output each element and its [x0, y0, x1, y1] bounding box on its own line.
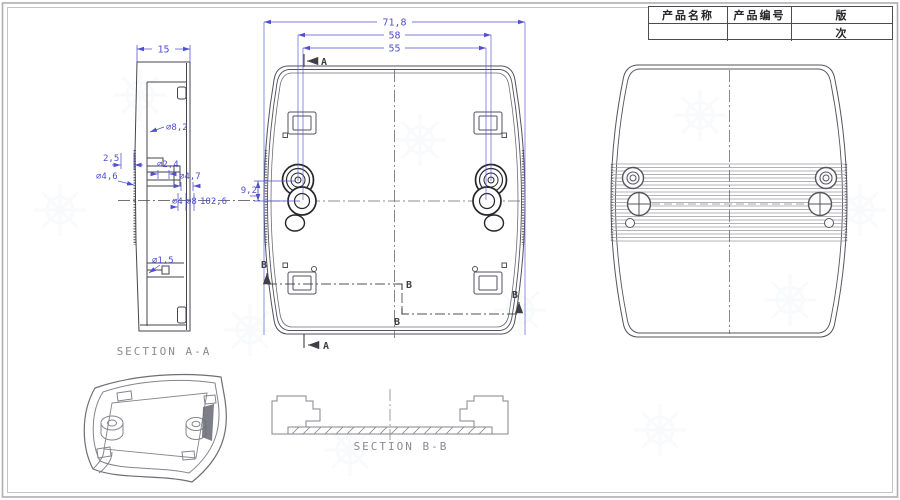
revision-label-top: 版 — [792, 7, 892, 24]
dim-dia-2-4: ⌀2,4 — [157, 160, 179, 170]
dim-side-thickness: 15 — [157, 45, 169, 56]
dim-arc-102-6: 102,6 — [200, 197, 227, 207]
product-name-label: 产品名称 — [649, 7, 728, 24]
dim-dia-8: ⌀8 — [186, 197, 197, 207]
dim-dia-4: ⌀4 — [172, 197, 183, 207]
dimension-texts: 71,8 58 55 15 ⌀8,2 2,5 ⌀4,6 ⌀2,4 ⌀4,7 ⌀4… — [96, 18, 407, 267]
dim-boss-spacing: 9,2 — [241, 186, 257, 196]
revision-label-bottom: 次 — [792, 24, 892, 41]
marker-b-left: B — [261, 260, 267, 271]
marker-b-right: B — [512, 290, 518, 301]
product-name-value — [649, 24, 728, 41]
drawing-area: 71,8 58 55 15 ⌀8,2 2,5 ⌀4,6 ⌀2,4 ⌀4,7 ⌀4… — [0, 0, 900, 500]
dim-overall-width: 71,8 — [382, 18, 406, 29]
section-bb-caption: SECTION B-B — [354, 440, 449, 453]
section-bb-view — [272, 389, 508, 440]
product-code-label: 产品编号 — [728, 7, 792, 24]
drawing-sheet: 71,8 58 55 15 ⌀8,2 2,5 ⌀4,6 ⌀2,4 ⌀4,7 ⌀4… — [0, 0, 900, 500]
title-block: 产品名称 产品编号 版 次 — [648, 6, 893, 40]
dim-boss-inner-span: 55 — [388, 44, 400, 55]
marker-b-mid-lower: B — [394, 317, 400, 328]
marker-b-mid-right: B — [406, 280, 412, 291]
dim-dia-1-5: ⌀1,5 — [152, 256, 174, 266]
dim-offset-2-5: 2,5 — [103, 154, 119, 164]
marker-a-bottom: A — [323, 341, 329, 352]
section-aa-caption: SECTION A-A — [117, 345, 212, 358]
exterior-view — [611, 65, 847, 337]
dim-boss-outer-span: 58 — [388, 31, 400, 42]
isometric-view — [84, 375, 226, 482]
iso-bosses — [101, 416, 206, 440]
dim-dia-4-6: ⌀4,6 — [96, 172, 118, 182]
dim-hole-8-2: ⌀8,2 — [166, 123, 188, 133]
marker-a-top: A — [321, 57, 327, 68]
product-code-value — [728, 24, 792, 41]
hatch-lines — [292, 427, 486, 434]
dim-dia-4-7: ⌀4,7 — [179, 172, 201, 182]
